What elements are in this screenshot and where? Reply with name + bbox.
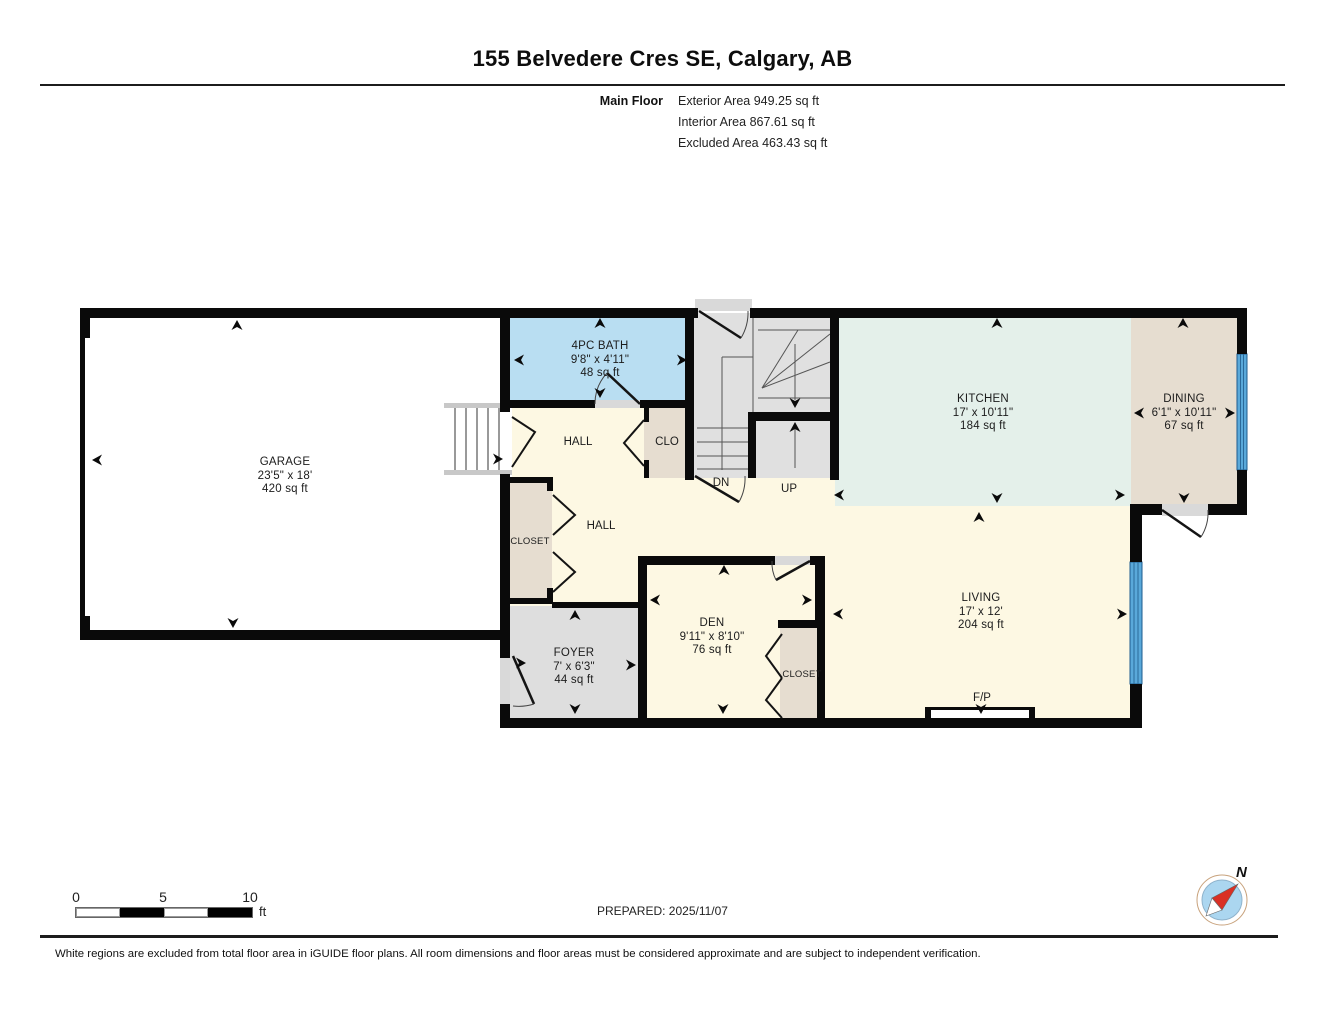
closet-left-label: CLOSET xyxy=(510,536,549,547)
room-dims: 9'11" x 8'10" xyxy=(680,631,745,645)
room-dining: DINING 6'1" x 10'11" 67 sq ft xyxy=(1152,393,1217,434)
room-name: FOYER xyxy=(553,647,595,661)
stairs-dn-label: DN xyxy=(713,477,730,489)
floor-plan-page: 155 Belvedere Cres SE, Calgary, AB Main … xyxy=(0,0,1325,1024)
room-dims: 17' x 10'11" xyxy=(953,407,1014,421)
room-dims: 23'5" x 18' xyxy=(258,470,313,484)
room-name: DEN xyxy=(680,617,745,631)
room-name: 4PC BATH xyxy=(571,340,629,354)
room-area: 76 sq ft xyxy=(680,644,745,658)
footer-divider xyxy=(40,935,1278,938)
room-garage: GARAGE 23'5" x 18' 420 sq ft xyxy=(258,456,313,497)
room-living: LIVING 17' x 12' 204 sq ft xyxy=(958,592,1004,633)
room-area: 420 sq ft xyxy=(258,483,313,497)
room-name: GARAGE xyxy=(258,456,313,470)
disclaimer-text: White regions are excluded from total fl… xyxy=(55,948,1285,960)
compass-north-label: N xyxy=(1236,864,1247,881)
scale-tick-5: 5 xyxy=(159,889,167,905)
compass-icon xyxy=(1197,875,1247,925)
hall-top-label: HALL xyxy=(564,436,593,448)
scale-tick-10: 10 xyxy=(242,889,258,905)
floor-plan xyxy=(0,0,1325,1024)
scale-bar-segments xyxy=(75,907,253,918)
room-fills xyxy=(90,299,1247,725)
room-den: DEN 9'11" x 8'10" 76 sq ft xyxy=(680,617,745,658)
clo-label: CLO xyxy=(655,436,679,448)
scale-unit-label: ft xyxy=(259,904,266,919)
room-dims: 17' x 12' xyxy=(958,606,1004,620)
room-area: 48 sq ft xyxy=(571,367,629,381)
fireplace-label: F/P xyxy=(973,692,991,704)
room-dims: 6'1" x 10'11" xyxy=(1152,407,1217,421)
scale-seg xyxy=(164,908,208,917)
hall-main-label: HALL xyxy=(587,520,616,532)
scale-tick-0: 0 xyxy=(72,889,80,905)
room-area: 204 sq ft xyxy=(958,619,1004,633)
prepared-date: PREPARED: 2025/11/07 xyxy=(597,904,728,918)
room-area: 67 sq ft xyxy=(1152,420,1217,434)
room-dims: 7' x 6'3" xyxy=(553,661,595,675)
room-bath: 4PC BATH 9'8" x 4'11" 48 sq ft xyxy=(571,340,629,381)
closet-den-label: CLOSET xyxy=(782,669,821,680)
room-foyer: FOYER 7' x 6'3" 44 sq ft xyxy=(553,647,595,688)
room-dims: 9'8" x 4'11" xyxy=(571,354,629,368)
stairs-up-label: UP xyxy=(781,483,797,495)
room-name: LIVING xyxy=(958,592,1004,606)
room-name: DINING xyxy=(1152,393,1217,407)
scale-seg xyxy=(208,908,252,917)
room-name: KITCHEN xyxy=(953,393,1014,407)
scale-seg xyxy=(76,908,120,917)
floor-plan-svg xyxy=(0,0,1325,1024)
room-area: 44 sq ft xyxy=(553,674,595,688)
scale-seg xyxy=(120,908,164,917)
garage-steps xyxy=(443,403,512,478)
room-area: 184 sq ft xyxy=(953,420,1014,434)
room-kitchen: KITCHEN 17' x 10'11" 184 sq ft xyxy=(953,393,1014,434)
